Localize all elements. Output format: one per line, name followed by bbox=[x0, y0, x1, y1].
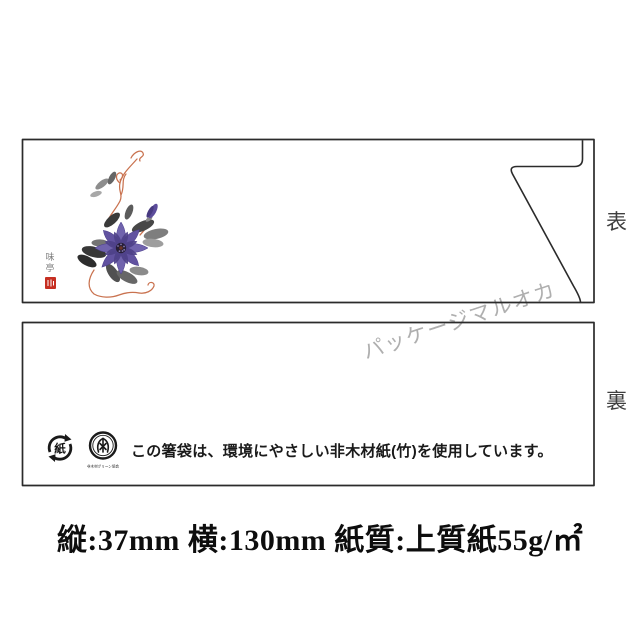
front-outline bbox=[23, 140, 595, 303]
sleeve-outlines bbox=[0, 0, 640, 640]
back-outline bbox=[23, 323, 595, 486]
flap-fold-line bbox=[511, 140, 582, 302]
chopstick-sleeve-spec-image: 味 亭 紙 bbox=[0, 0, 640, 640]
